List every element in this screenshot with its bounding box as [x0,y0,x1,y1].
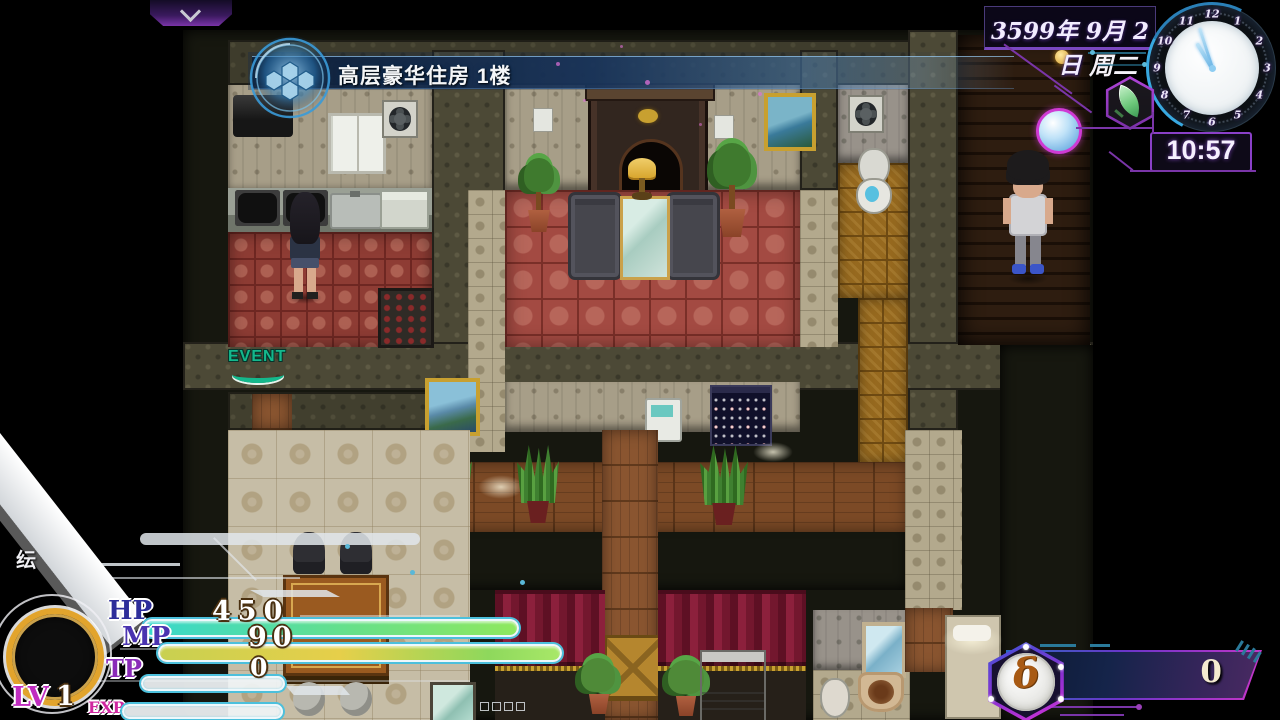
clock-number: 3 [1263,62,1271,75]
exp-label: EXP [88,698,125,717]
maid-legs [294,264,303,294]
chevron-down-icon [180,1,201,22]
potted-plant [518,158,560,236]
clock-number: 5 [1234,109,1242,122]
analog-clock: 12 1 2 3 4 5 6 7 8 9 10 11 [1148,4,1276,132]
clock-number: 9 [1153,62,1161,75]
corridor-floor-right [905,430,962,610]
digital-time-display: 10:57 [1150,132,1252,172]
circuit-decoration [1142,62,1147,67]
painting [425,378,480,436]
clock-number: 2 [1256,35,1264,48]
ventilation-fan [848,95,884,133]
particle [556,62,560,66]
snake-plant [698,445,750,527]
kitchen-sink [330,193,382,229]
player-character[interactable] [1003,150,1053,285]
circuit-decoration [1109,151,1134,171]
sky-orb-icon [1036,108,1082,154]
sofa-left [568,192,622,280]
particle [583,99,586,102]
circuit-decoration [480,702,489,711]
snake-plant [515,445,561,525]
wall-panel [533,108,553,132]
particle [645,80,650,85]
particle [699,123,702,126]
circuit-decoration [1130,170,1256,172]
circuit-decoration [345,544,350,549]
player-shirt [1009,194,1047,236]
clock-number: 4 [1256,88,1264,101]
digital-time-text: 10:57 [1152,135,1250,166]
circuit-decoration [516,702,525,711]
particle [620,45,623,48]
maid-hair [290,192,320,244]
wall-calendar [710,385,772,446]
mp-bar-fill [160,646,560,660]
circuit-decoration [504,702,513,711]
clock-number: 12 [1204,8,1219,21]
hex-globe-icon [246,34,334,122]
circuit-decoration [90,577,300,579]
toilet [817,678,851,718]
clock-number: 11 [1179,14,1194,27]
circuit-decoration [1090,50,1095,55]
clock-number: 7 [1183,109,1191,122]
date-display: 3599年 9月 2日 [984,6,1156,50]
status-hud: 纭 HP 450 MP 90 TP 0 LV 1 EXP [0,520,580,720]
maid-character[interactable] [286,192,324,304]
game-screen: EVENT [0,0,1280,720]
circuit-decoration [520,580,525,585]
event-sign[interactable]: EVENT [228,348,304,394]
location-banner: 高层豪华住房 1楼 [252,56,1014,89]
circuit-decoration [1076,127,1154,129]
painting [764,93,816,151]
metal-cabinet [700,650,766,720]
circuit-decoration [286,686,350,695]
wall-panel [714,115,734,139]
circuit-decoration [1098,64,1142,66]
circuit-decoration [1040,644,1076,647]
tp-label: TP [106,654,142,683]
bathroom-sink [858,672,904,712]
event-sign-label: EVENT [228,348,304,366]
sofa-right [666,192,720,280]
clock-number: 6 [1208,115,1216,128]
location-title: 高层豪华住房 1楼 [338,60,512,90]
kitchen-window [328,113,386,174]
clock-number: 8 [1161,88,1169,101]
potted-plant [577,658,619,718]
hp-bar [143,619,519,637]
circuit-decoration [1136,704,1142,710]
bathroom-mirror [862,622,906,678]
particle [758,92,762,96]
player-legs [1015,232,1026,266]
lv-value: 1 [56,681,75,712]
dishwasher [380,190,429,229]
ventilation-fan [382,100,418,138]
circuit-decoration [1152,112,1154,134]
event-sign-arrow [232,366,284,383]
kitchen-doorway-floor [252,394,292,430]
circuit-decoration [1088,52,1146,54]
hud-top-bar [140,533,420,545]
player-hair [1007,150,1049,180]
exp-bar [122,704,283,719]
clock-number: 10 [1157,35,1172,48]
wine-rack [378,288,434,348]
stove [235,190,280,226]
circuit-decoration [300,615,460,617]
circuit-decoration [1060,714,1124,716]
hud-corner-glyph: 纭 [16,544,36,573]
clock-number: 1 [1234,14,1242,27]
collapse-tab[interactable] [150,0,232,26]
tp-value: 0 [250,653,267,682]
circuit-decoration [410,570,415,575]
circuit-decoration [492,702,501,711]
circuit-decoration [1090,644,1110,647]
wall-lamp-glow [753,442,793,462]
hall-tiles [800,190,838,347]
lv-label: LV [12,682,49,713]
parquet-corridor [858,298,908,463]
toilet [852,148,892,214]
table-lamp [628,158,656,206]
mp-value: 90 [248,622,298,653]
glass-table [620,196,670,280]
hp-bar-fill [145,621,517,635]
mp-bar [158,644,562,662]
currency-amount: 0 [1200,654,1222,690]
clock-pin [1209,65,1216,72]
